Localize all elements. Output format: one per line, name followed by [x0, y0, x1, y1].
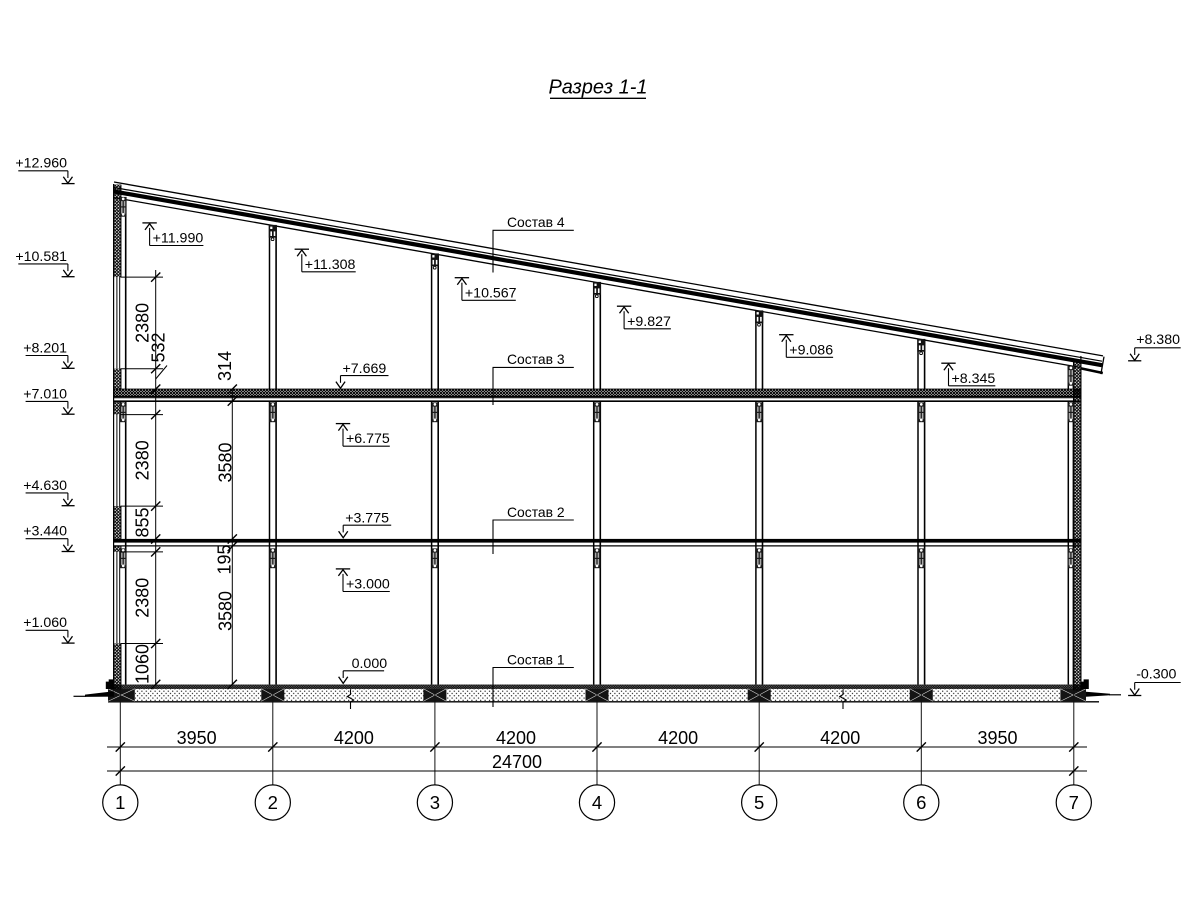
svg-text:Состав 3: Состав 3	[507, 351, 565, 367]
svg-text:+9.827: +9.827	[627, 314, 671, 330]
svg-text:+3.775: +3.775	[345, 510, 389, 526]
svg-text:5: 5	[754, 792, 764, 813]
svg-text:3580: 3580	[216, 442, 236, 482]
svg-text:+1.060: +1.060	[23, 615, 67, 631]
svg-text:Разрез 1-1: Разрез 1-1	[548, 77, 647, 99]
svg-text:855: 855	[133, 507, 153, 537]
svg-text:1060: 1060	[133, 644, 153, 684]
svg-text:4200: 4200	[820, 728, 860, 748]
svg-text:+10.567: +10.567	[465, 285, 517, 301]
svg-text:4200: 4200	[496, 728, 536, 748]
svg-text:24700: 24700	[492, 752, 542, 772]
svg-text:4: 4	[592, 792, 602, 813]
svg-text:Состав 4: Состав 4	[507, 214, 565, 230]
svg-text:+8.380: +8.380	[1136, 332, 1180, 348]
svg-text:3950: 3950	[977, 728, 1017, 748]
svg-text:6: 6	[916, 792, 926, 813]
svg-text:7: 7	[1069, 792, 1079, 813]
svg-text:2380: 2380	[133, 578, 153, 618]
svg-text:4200: 4200	[334, 728, 374, 748]
svg-text:0.000: 0.000	[352, 656, 388, 672]
svg-text:+3.000: +3.000	[346, 577, 390, 593]
svg-text:2: 2	[268, 792, 278, 813]
svg-text:195: 195	[215, 544, 235, 574]
svg-text:4200: 4200	[658, 728, 698, 748]
svg-text:3: 3	[430, 792, 440, 813]
svg-text:+7.669: +7.669	[343, 361, 387, 377]
svg-text:3950: 3950	[177, 728, 217, 748]
svg-text:+4.630: +4.630	[23, 478, 67, 494]
svg-text:+7.010: +7.010	[23, 386, 67, 402]
svg-text:+10.581: +10.581	[15, 249, 67, 265]
svg-text:+11.308: +11.308	[305, 257, 356, 273]
svg-text:Состав 1: Состав 1	[507, 651, 565, 667]
svg-text:+8.201: +8.201	[23, 340, 67, 356]
svg-text:-0.300: -0.300	[1136, 667, 1176, 683]
svg-text:+3.440: +3.440	[23, 524, 67, 540]
svg-text:+8.345: +8.345	[952, 371, 996, 387]
svg-text:+9.086: +9.086	[789, 342, 833, 358]
svg-text:+11.990: +11.990	[153, 231, 204, 247]
svg-text:2380: 2380	[133, 440, 153, 480]
svg-text:Состав 2: Состав 2	[507, 504, 565, 520]
svg-text:1: 1	[115, 792, 125, 813]
svg-text:+6.775: +6.775	[346, 431, 390, 447]
svg-text:+12.960: +12.960	[15, 156, 67, 172]
svg-text:3580: 3580	[216, 591, 236, 631]
svg-text:532: 532	[149, 332, 169, 362]
svg-text:314: 314	[215, 351, 235, 381]
